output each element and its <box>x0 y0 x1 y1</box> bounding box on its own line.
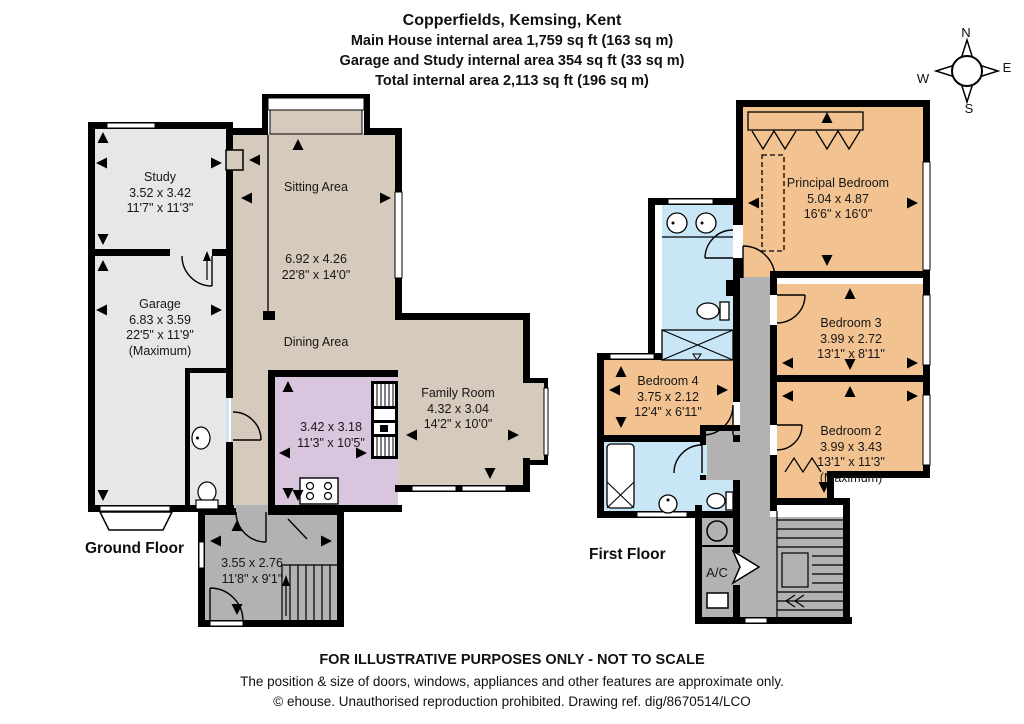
disclaimer-line1: FOR ILLUSTRATIVE PURPOSES ONLY - NOT TO … <box>0 652 1024 668</box>
study-window <box>107 123 155 128</box>
bedroom3-window <box>923 295 930 365</box>
ground-floor-title: Ground Floor <box>85 540 184 558</box>
floorplan-page: Copperfields, Kemsing, Kent Main House i… <box>0 0 1024 724</box>
cooktop-icon <box>300 478 338 504</box>
appliance-tower-icon <box>374 384 395 456</box>
landing-window <box>745 618 767 623</box>
bedroom2-label: Bedroom 2 3.99 x 3.43 13'1" x 11'3" (Max… <box>817 424 885 486</box>
hall-opening-fill <box>236 505 268 517</box>
garage-door-opening <box>100 506 170 511</box>
bedroom4-window <box>610 354 654 359</box>
shower-icon <box>662 330 733 360</box>
porch-icon <box>100 512 172 530</box>
study-label: Study 3.52 x 3.42 11'7" x 11'3" <box>127 170 194 217</box>
disclaimer-line2: The position & size of doors, windows, a… <box>0 674 1024 689</box>
copyright-line: © ehouse. Unauthorised reproduction proh… <box>0 694 1024 709</box>
garage-label: Garage 6.83 x 3.59 22'5" x 11'9" (Maximu… <box>126 297 194 359</box>
compass-east-label: E <box>1003 60 1012 75</box>
bathroom-sink-icon <box>667 213 687 233</box>
bedroom4-label: Bedroom 4 3.75 x 2.12 12'4" x 6'11" <box>634 374 702 421</box>
sitting-area-dims: 6.92 x 4.26 22'8" x 14'0" <box>282 252 351 283</box>
toilet-top-icon <box>697 303 719 319</box>
bathroom-sink2-icon <box>696 213 716 233</box>
hall-label: 3.55 x 2.76 11'8" x 9'1" <box>221 556 283 587</box>
family-room-label: Family Room 4.32 x 3.04 14'2" x 10'0" <box>421 386 495 433</box>
toilet-bottom-icon <box>707 494 725 509</box>
family-bay-window <box>544 388 548 455</box>
bath-icon <box>607 444 634 508</box>
front-door-opening <box>210 621 243 626</box>
compass-south-label: S <box>965 101 974 116</box>
wc-sink-icon <box>192 427 210 449</box>
first-floor-title: First Floor <box>589 546 666 564</box>
sitting-bay-window <box>268 98 364 110</box>
study-opening <box>226 150 243 170</box>
dining-area-label: Dining Area <box>284 335 349 351</box>
bedroom2-window <box>923 395 930 465</box>
family-bay-fill <box>523 383 544 460</box>
bathroom-bottom-window <box>637 512 687 517</box>
principal-bedroom-label: Principal Bedroom 5.04 x 4.87 16'6" x 16… <box>787 176 889 223</box>
bedroom3-label: Bedroom 3 3.99 x 2.72 13'1" x 8'11" <box>817 316 885 363</box>
family-window-1 <box>412 486 456 491</box>
ac-label: A/C <box>706 565 728 580</box>
kitchen-label: 3.42 x 3.18 11'3" x 10'5" <box>297 420 365 451</box>
hall-window <box>199 542 204 568</box>
sitting-side-window <box>395 192 402 278</box>
compass-rose-icon: N E S W <box>917 25 1012 116</box>
ac-unit-icon <box>707 593 728 608</box>
landing-fill <box>740 277 770 517</box>
compass-west-label: W <box>917 71 930 86</box>
sink-bottom-icon <box>659 495 677 513</box>
sitting-area-label: Sitting Area <box>284 180 348 196</box>
compass-north-label: N <box>961 25 970 40</box>
wc-toilet-icon <box>198 482 216 502</box>
family-window-2 <box>462 486 506 491</box>
principal-window <box>923 162 930 270</box>
garage-room-fill <box>92 256 226 505</box>
bay-window-sill <box>270 110 362 134</box>
bathroom-top-window <box>668 199 713 204</box>
